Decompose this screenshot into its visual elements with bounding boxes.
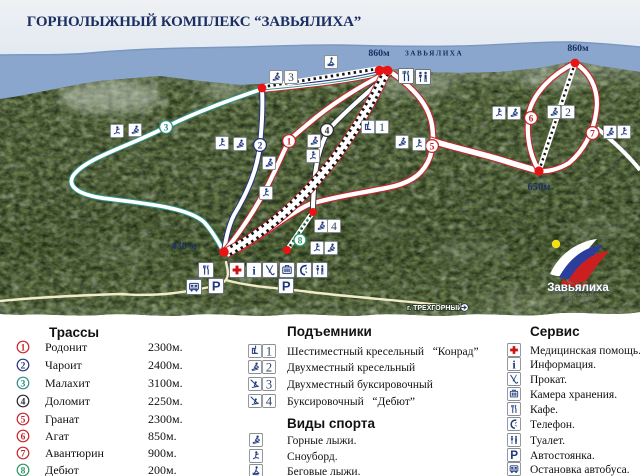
svg-text:Телефон.: Телефон.	[530, 419, 575, 431]
svg-text:900м.: 900м.	[148, 446, 177, 460]
svg-text:7: 7	[21, 450, 26, 460]
svg-text:1: 1	[287, 138, 292, 148]
svg-text:Родонит: Родонит	[45, 340, 88, 354]
svg-text:Автостоянка.: Автостоянка.	[530, 450, 595, 462]
svg-text:4: 4	[325, 127, 330, 137]
svg-text:(351-11)-4-16-50: (351-11)-4-16-50	[564, 297, 596, 302]
svg-text:1: 1	[379, 122, 385, 134]
svg-text:Малахит: Малахит	[45, 376, 91, 390]
svg-text:4: 4	[266, 394, 273, 408]
svg-text:Подъемники: Подъемники	[287, 324, 372, 339]
svg-text:Двухместный буксировочный: Двухместный буксировочный	[287, 379, 433, 391]
svg-text:2: 2	[258, 142, 263, 152]
svg-text:Горные лыжи.: Горные лыжи.	[287, 435, 357, 447]
svg-text:2300м.: 2300м.	[148, 412, 183, 426]
svg-text:3: 3	[164, 124, 169, 134]
svg-text:Туалет.: Туалет.	[530, 435, 565, 447]
svg-text:Информация.: Информация.	[530, 359, 596, 371]
svg-text:6: 6	[21, 433, 26, 443]
svg-text:2400м.: 2400м.	[148, 358, 183, 372]
svg-text:ГОРНОЛЫЖНЫЙ КОМПЛЕКС “ЗАВЬЯЛИХ: ГОРНОЛЫЖНЫЙ КОМПЛЕКС “ЗАВЬЯЛИХА”	[27, 13, 361, 30]
svg-text:Авантюрин: Авантюрин	[45, 446, 105, 460]
svg-text:Шестиместный кресельный “Кон: Шестиместный кресельный “Конрад”	[287, 346, 479, 358]
svg-text:Дебют: Дебют	[45, 463, 80, 476]
svg-text:200м.: 200м.	[148, 463, 177, 476]
svg-text:Доломит: Доломит	[45, 394, 91, 408]
svg-text:3: 3	[266, 377, 272, 391]
svg-text:850м.: 850м.	[148, 429, 177, 443]
svg-text:Чароит: Чароит	[45, 358, 83, 372]
svg-text:Медицинская помощь.: Медицинская помощь.	[530, 345, 640, 357]
svg-text:Агат: Агат	[45, 429, 70, 443]
svg-text:Прокат.: Прокат.	[530, 374, 567, 386]
svg-text:2: 2	[21, 362, 26, 372]
svg-text:3100м.: 3100м.	[148, 376, 183, 390]
svg-text:3: 3	[288, 72, 294, 84]
svg-text:430 м: 430 м	[171, 241, 197, 252]
svg-text:Беговые лыжи.: Беговые лыжи.	[287, 466, 361, 476]
svg-text:Остановка автобуса.: Остановка автобуса.	[530, 464, 630, 476]
svg-text:2300м.: 2300м.	[148, 340, 183, 354]
svg-text:2: 2	[266, 360, 272, 374]
svg-text:1: 1	[21, 344, 26, 354]
svg-text:Трассы: Трассы	[49, 325, 99, 340]
svg-text:8: 8	[21, 467, 26, 476]
svg-text:ЗАВЬЯЛИХА: ЗАВЬЯЛИХА	[405, 50, 463, 58]
svg-text:Гранат: Гранат	[45, 412, 80, 426]
svg-text:650м: 650м	[528, 182, 551, 193]
svg-text:Буксировочный “Дебют”: Буксировочный “Дебют”	[287, 396, 415, 408]
svg-text:4: 4	[331, 221, 337, 233]
svg-text:860м: 860м	[368, 48, 390, 59]
svg-text:2: 2	[565, 107, 571, 119]
svg-text:5: 5	[430, 143, 435, 153]
svg-text:2250м.: 2250м.	[148, 394, 183, 408]
svg-text:1: 1	[266, 344, 272, 358]
svg-text:Виды спорта: Виды спорта	[287, 416, 375, 431]
svg-text:8: 8	[298, 237, 303, 247]
svg-text:Кафе.: Кафе.	[530, 404, 558, 416]
svg-text:7: 7	[590, 130, 595, 140]
svg-text:Сноуборд.: Сноуборд.	[287, 451, 338, 463]
svg-text:860м: 860м	[567, 43, 589, 54]
svg-text:4: 4	[21, 398, 26, 408]
svg-text:г. ТРЕХГОРНЫЙ: г. ТРЕХГОРНЫЙ	[407, 303, 462, 312]
svg-text:Камера хранения.: Камера хранения.	[530, 389, 617, 401]
svg-text:6: 6	[529, 115, 534, 125]
svg-text:5: 5	[21, 416, 26, 426]
svg-text:Двухместный кресельный: Двухместный кресельный	[287, 362, 415, 374]
svg-text:Сервис: Сервис	[530, 324, 580, 339]
svg-text:3: 3	[21, 380, 26, 390]
